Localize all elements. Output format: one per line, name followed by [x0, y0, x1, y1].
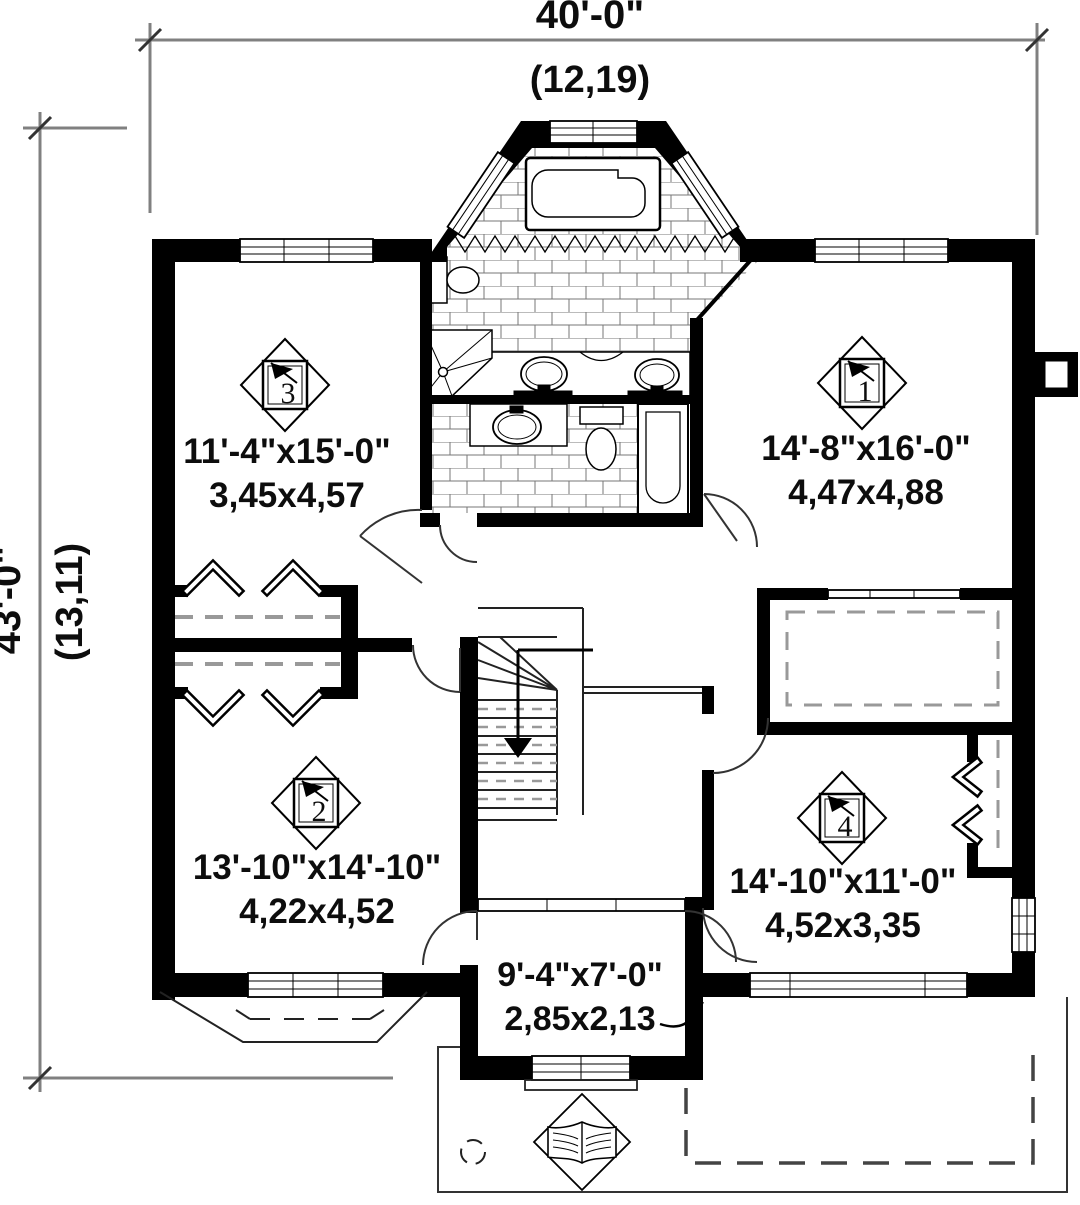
dim-depth-imperial: 43'-0": [0, 546, 29, 655]
door-master-bath: [440, 525, 477, 562]
cased-opening-vestibule: [478, 899, 685, 911]
book-icon: [548, 1122, 616, 1163]
porch-post: [461, 1140, 485, 1164]
door-room1: [704, 494, 757, 547]
dim-width-imperial: 40'-0": [536, 0, 645, 37]
window-room3-top: [240, 239, 373, 262]
room-number: 2: [312, 795, 327, 828]
room2-size-metric: 4,22x4,52: [239, 892, 395, 931]
room-marker-2: 2: [272, 757, 360, 849]
bay-roof-outline: [160, 992, 427, 1042]
porch-step: [525, 1080, 637, 1090]
floor-plan-svg: 1 2 3 4: [0, 0, 1080, 1205]
window-room1-top: [815, 239, 948, 262]
library-marker: [534, 1094, 630, 1190]
room4-size-imperial: 14'-10"x11'-0": [730, 862, 957, 901]
room3-size-metric: 3,45x4,57: [209, 476, 365, 515]
cased-opening-closet: [828, 590, 960, 598]
second-bath-tub: [638, 404, 688, 516]
window-room4-bottom: [750, 973, 967, 997]
room1-size-imperial: 14'-8"x16'-0": [761, 429, 970, 468]
floor-plan-page: 1 2 3 4: [0, 0, 1080, 1205]
room-marker-4: 4: [798, 772, 886, 864]
window-bay-top: [550, 121, 637, 143]
staircase: [478, 608, 702, 820]
room-number: 1: [858, 375, 873, 408]
vestibule-size-metric: 2,85x2,13: [504, 1000, 655, 1038]
room-number: 3: [281, 377, 296, 410]
lower-roof-dashed: [686, 1040, 1033, 1163]
dim-depth-metric: (13,11): [49, 543, 91, 661]
second-bath-vanity: [470, 404, 567, 446]
room-marker-1: 1: [818, 337, 906, 429]
room2-size-imperial: 13'-10"x14'-10": [193, 848, 441, 887]
door-room2-south: [423, 911, 477, 965]
door-room3: [360, 510, 422, 583]
dim-width-metric: (12,19): [530, 59, 650, 101]
room4-size-metric: 4,52x3,35: [765, 906, 921, 945]
room-marker-3: 3: [241, 339, 329, 431]
window-vestibule-bottom: [532, 1056, 630, 1080]
chimney-flue: [1045, 361, 1068, 388]
vestibule-size-imperial: 9'-4"x7'-0": [497, 956, 663, 994]
window-room2-bottom: [248, 973, 383, 997]
door-hall-room2-north: [413, 645, 460, 692]
door-vestibule-room4: [703, 908, 757, 962]
room3-size-imperial: 11'-4"x15'-0": [183, 432, 390, 471]
bathtub-bay: [526, 158, 660, 230]
room-number: 4: [838, 810, 853, 843]
window-room4-right: [1012, 898, 1035, 952]
room1-size-metric: 4,47x4,88: [788, 473, 944, 512]
